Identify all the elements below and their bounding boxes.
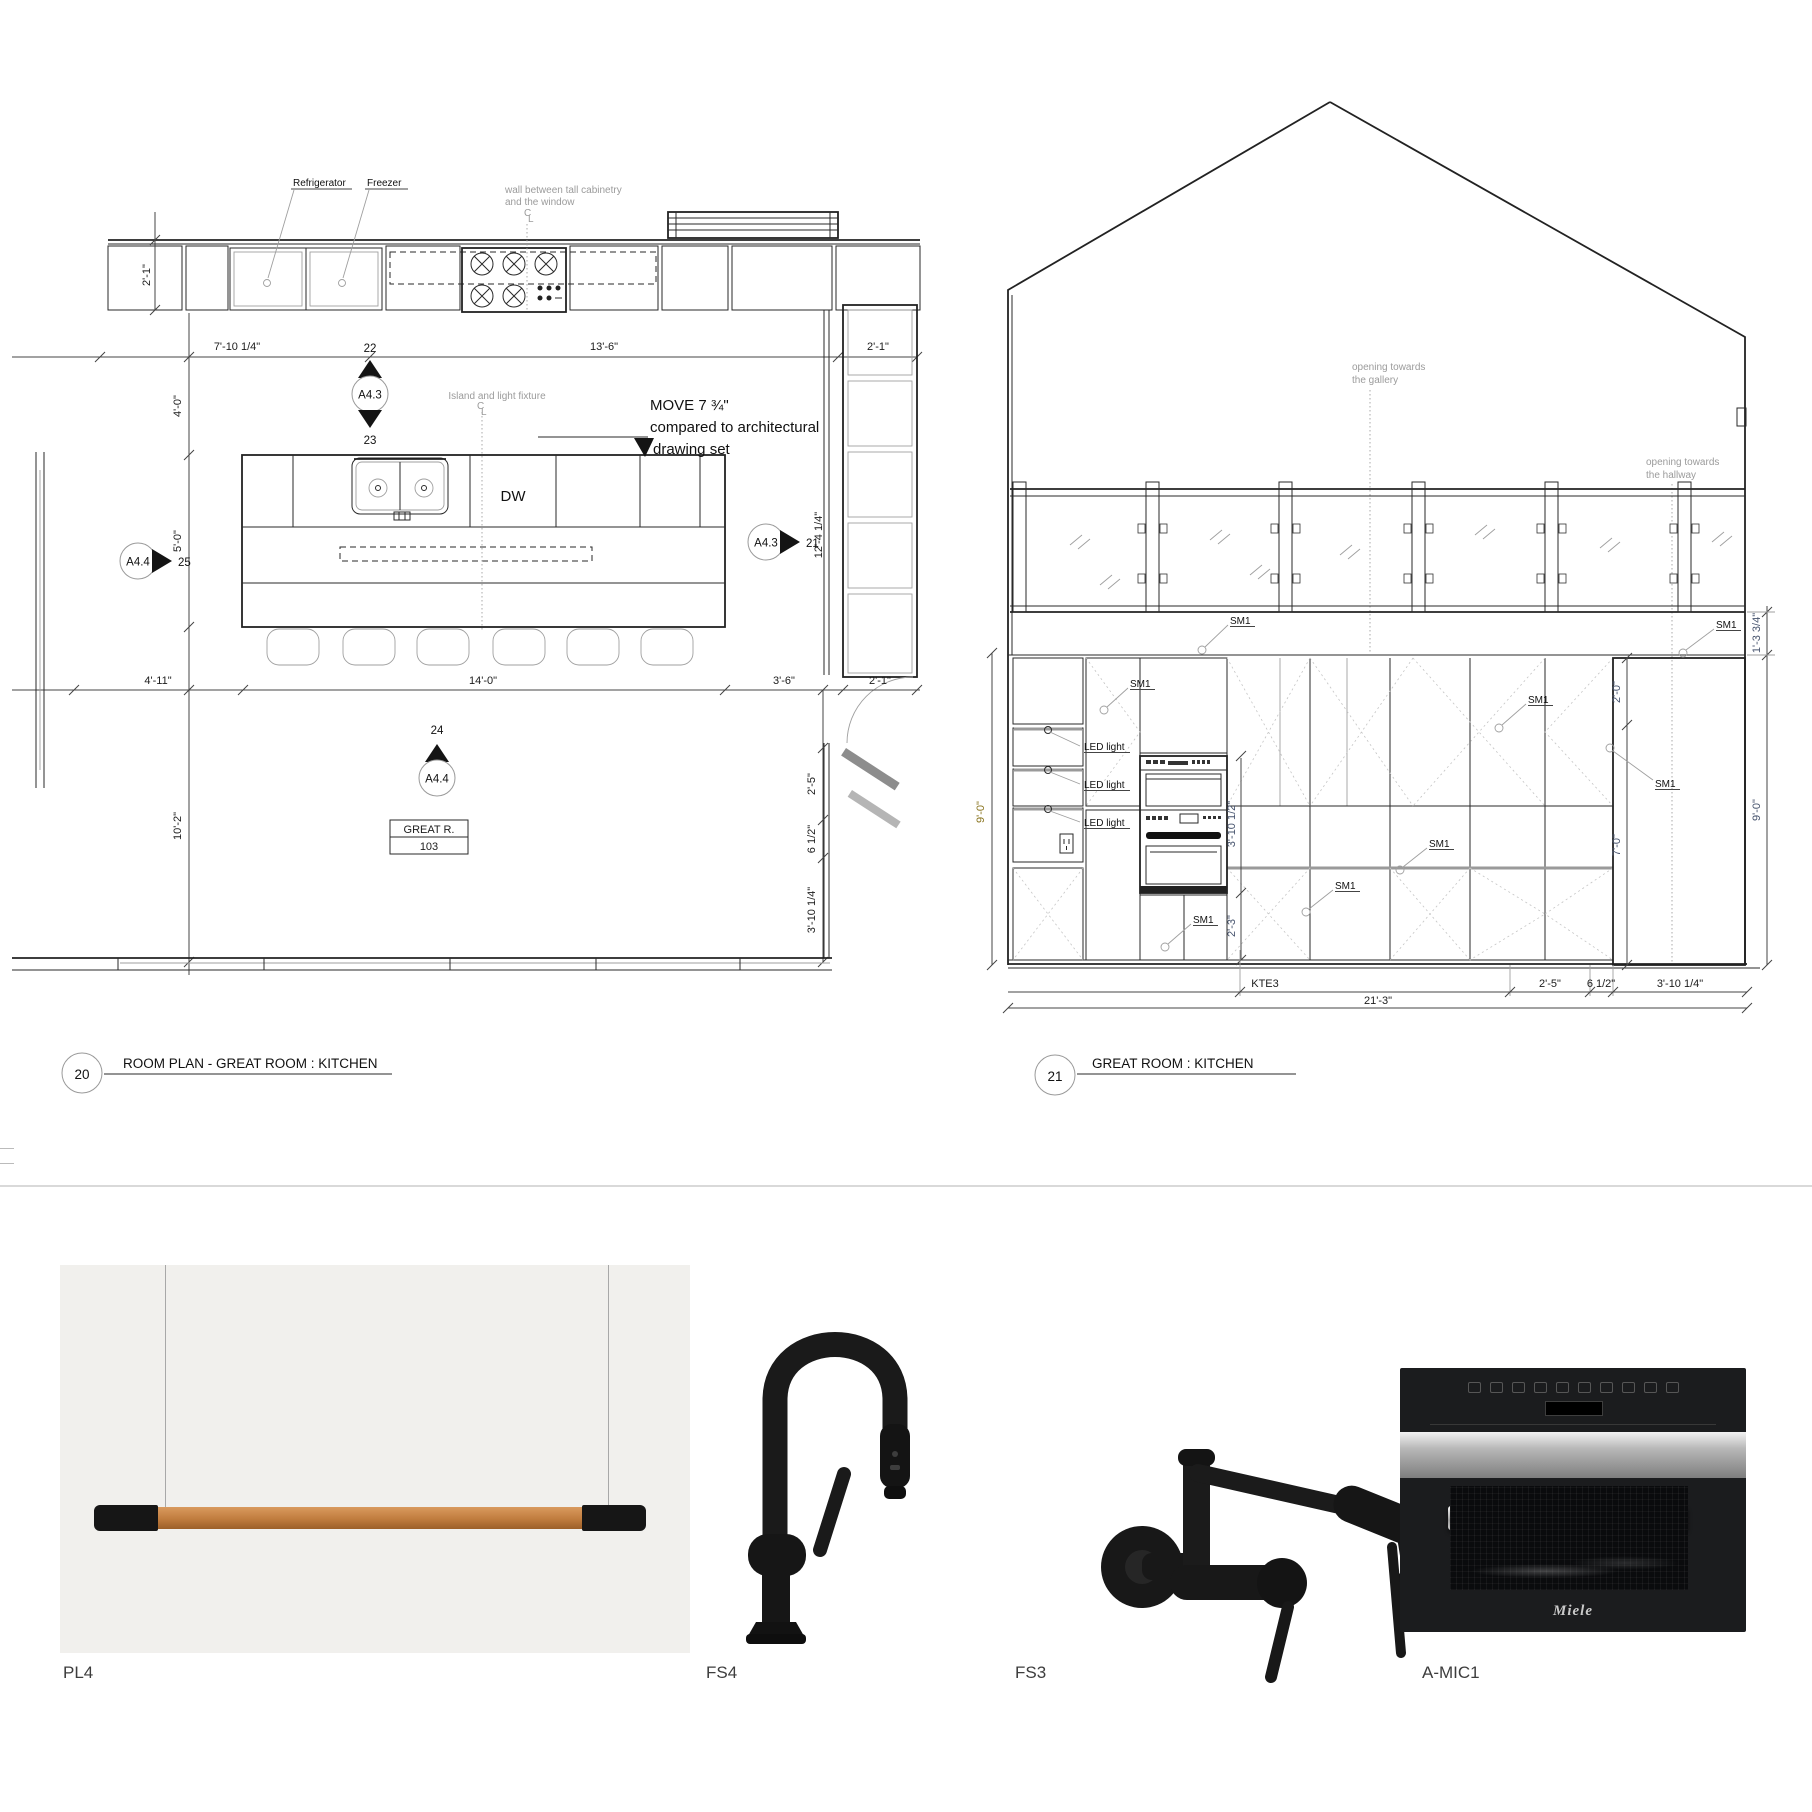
marker-sheet: A4.4 (425, 774, 449, 786)
refrigerator-label: Refrigerator (293, 178, 346, 189)
room-name: GREAT R. (404, 824, 455, 836)
section-marker-24: 24 A4.4 (419, 725, 455, 796)
marker-number: 22 (364, 343, 377, 355)
elevation-title: 21 GREAT ROOM : KITCHEN (1035, 1055, 1296, 1095)
product-label: PL4 (63, 1663, 93, 1683)
marker-number: 24 (431, 725, 444, 737)
dim-label: 2'-1" (141, 264, 153, 286)
sm1-label: SM1 (1130, 679, 1151, 690)
room-tag: GREAT R. 103 (390, 820, 468, 854)
opening-notes: opening towards the gallery opening towa… (1352, 362, 1719, 962)
wall-note-line2: and the window (505, 197, 575, 208)
drawing-number: 21 (1047, 1069, 1062, 1084)
elevation-outline (1008, 102, 1760, 968)
island-note: Island and light fixture (448, 391, 546, 402)
led-label: LED light (1084, 818, 1125, 829)
dim-label: 6 1/2" (1587, 978, 1615, 990)
dim-label: 2'-5" (1539, 978, 1561, 990)
island-stools (267, 629, 693, 665)
pendant-end-cap (582, 1505, 646, 1531)
floor-plan-drawing: Refrigerator Freezer wall between tall c… (12, 178, 922, 1093)
product-label: FS3 (1015, 1663, 1046, 1683)
move-note-line1: MOVE 7 ¾" (650, 397, 729, 414)
dim-label: 6 1/2" (806, 825, 818, 853)
dim-label: 10'-2" (172, 812, 184, 840)
plan-side-dims: 2'-5" 6 1/2" 3'-10 1/4" (806, 685, 828, 967)
drawings-svg: Refrigerator Freezer wall between tall c… (0, 0, 1812, 1200)
drawing-title: ROOM PLAN - GREAT ROOM : KITCHEN (123, 1056, 378, 1071)
door-swing-marks (1013, 658, 1613, 960)
microwave-touch-strip (1430, 1424, 1716, 1425)
freezer-label: Freezer (367, 178, 402, 189)
move-note-line3: drawing set (653, 441, 731, 458)
cabinet-wall: 2'-0" 7'-0" (1008, 653, 1745, 970)
gallery-note-line2: the gallery (1352, 375, 1398, 386)
centerline-icon: L (528, 214, 534, 225)
island-sink (352, 458, 448, 520)
led-label: LED light (1084, 742, 1125, 753)
island-light-fixture-outline (340, 547, 592, 561)
dim-label: 1'-3 3/4" (1751, 613, 1763, 653)
dim-label: 7'-0" (1611, 834, 1623, 856)
pendant-wood-bar (152, 1507, 588, 1529)
dim-label: 2'-5" (806, 773, 818, 795)
cabinet-code-label: KTE3 (1251, 978, 1279, 990)
microwave-display (1545, 1401, 1603, 1416)
sm1-label: SM1 (1335, 881, 1356, 892)
move-note-line2: compared to architectural (650, 419, 819, 436)
revision-note: MOVE 7 ¾" compared to architectural draw… (538, 397, 819, 458)
dim-label: 3'-10 1/2" (1226, 801, 1238, 847)
microwave-brand-logo: Miele (1400, 1603, 1746, 1620)
section-marker-22-23: 22 A4.3 23 (352, 343, 388, 447)
section-divider (0, 1185, 1812, 1187)
dim-label: 3'-10 1/4" (1657, 978, 1703, 990)
pendant-wire (165, 1265, 166, 1507)
dim-label: 21'-3" (1364, 995, 1392, 1007)
wall-oven-stack: 3'-10 1/2" 2'-3" (1140, 751, 1246, 965)
marker-sheet: A4.3 (754, 538, 778, 550)
marker-number: 23 (364, 435, 377, 447)
drawing-sheet: Refrigerator Freezer wall between tall c… (0, 0, 1812, 1812)
marker-sheet: A4.3 (358, 390, 382, 402)
outlet-icon (1060, 834, 1073, 853)
plan-title: 20 ROOM PLAN - GREAT ROOM : KITCHEN (62, 1053, 392, 1093)
plan-walls-windows (12, 452, 832, 970)
faucet-nozzle (884, 1486, 906, 1499)
sm1-label: SM1 (1230, 616, 1251, 627)
drawing-title: GREAT ROOM : KITCHEN (1092, 1056, 1254, 1071)
section-marker-21: A4.3 21 12'-4 1/4" (748, 512, 825, 560)
hallway-note-line2: the hallway (1646, 470, 1696, 481)
sm1-label: SM1 (1716, 620, 1737, 631)
sm1-label: SM1 (1655, 779, 1676, 790)
dim-label: 13'-6" (590, 341, 618, 353)
dim-label: 2'-1" (869, 675, 891, 687)
dim-label: 9'-0" (1751, 799, 1763, 821)
edge-tick (0, 1148, 14, 1149)
faucet-handle (820, 1474, 844, 1550)
dim-label: 3'-10 1/4" (806, 887, 818, 933)
vent-hood (668, 212, 838, 238)
dim-label: 5'-0" (172, 530, 184, 552)
pendant-wire (608, 1265, 609, 1507)
marker-sheet: A4.4 (126, 557, 150, 569)
gallery-note-line1: opening towards (1352, 362, 1425, 373)
dim-label: 7'-10 1/4" (214, 341, 260, 353)
centerline-icon: L (481, 407, 487, 418)
glass-marks (1070, 525, 1732, 589)
potfiller-lever (1271, 1607, 1288, 1677)
plan-top-dim: 7'-10 1/4" 13'-6" 2'-1" 2'-1" (12, 212, 922, 362)
product-image-pendant-light (60, 1265, 690, 1653)
faucet-base (748, 1622, 804, 1636)
dim-label: 2'-1" (867, 341, 889, 353)
door-leaf (841, 748, 900, 790)
pendant-end-cap (94, 1505, 158, 1531)
dim-label: 12'-4 1/4" (813, 512, 825, 558)
led-label: LED light (1084, 780, 1125, 791)
product-image-microwave: Miele (1400, 1368, 1746, 1632)
hallway-note-line1: opening towards (1646, 457, 1719, 468)
dishwasher-label: DW (501, 488, 527, 505)
microwave-door-glass (1450, 1486, 1688, 1590)
sm1-label: SM1 (1528, 695, 1549, 706)
plan-right-wall (824, 305, 917, 958)
dim-label: 2'-3" (1226, 915, 1238, 937)
elevation-drawing: opening towards the gallery opening towa… (975, 102, 1775, 1095)
elevation-bottom-dims: KTE3 2'-5" 6 1/2" 3'-10 1/4" 21'-3" (1003, 950, 1752, 1013)
wall-note-line1: wall between tall cabinetry (504, 185, 622, 196)
dim-label: 9'-0" (975, 801, 987, 823)
dim-label: 4'-0" (172, 395, 184, 417)
refrigerator-knob (264, 280, 271, 287)
faucet-icon (394, 512, 410, 520)
freezer-knob (339, 280, 346, 287)
microwave-steel-band (1400, 1432, 1746, 1478)
plan-left-dim: 4'-0" 5'-0" 10'-2" (172, 313, 194, 975)
dim-label: 14'-0" (469, 675, 497, 687)
drawing-number: 20 (74, 1067, 89, 1082)
dim-label: 3'-6" (773, 675, 795, 687)
pantry-cabinet (1613, 658, 1745, 965)
microwave-control-buttons (1454, 1382, 1692, 1393)
pendant-bar (94, 1505, 646, 1531)
plan-bottom-dim: 4'-11" 14'-0" 3'-6" 2'-1" (12, 675, 922, 695)
product-label: A-MIC1 (1422, 1663, 1480, 1683)
door-leaf-shadow (848, 790, 901, 828)
product-image-kitchen-faucet (700, 1288, 940, 1660)
dim-label: 2'-0" (1611, 681, 1623, 703)
balustrade-posts (1013, 482, 1691, 612)
led-callouts: LED light LED light LED light (1050, 732, 1130, 829)
dim-label: 4'-11" (144, 675, 171, 687)
marker-number: 25 (178, 557, 191, 569)
balustrade (1010, 482, 1745, 612)
edge-tick (0, 1163, 14, 1164)
range-cooktop (462, 248, 566, 312)
sm1-label: SM1 (1193, 915, 1214, 926)
room-number: 103 (420, 841, 438, 853)
product-label: FS4 (706, 1663, 737, 1683)
glass-clips (1138, 524, 1699, 583)
sm1-label: SM1 (1429, 839, 1450, 850)
